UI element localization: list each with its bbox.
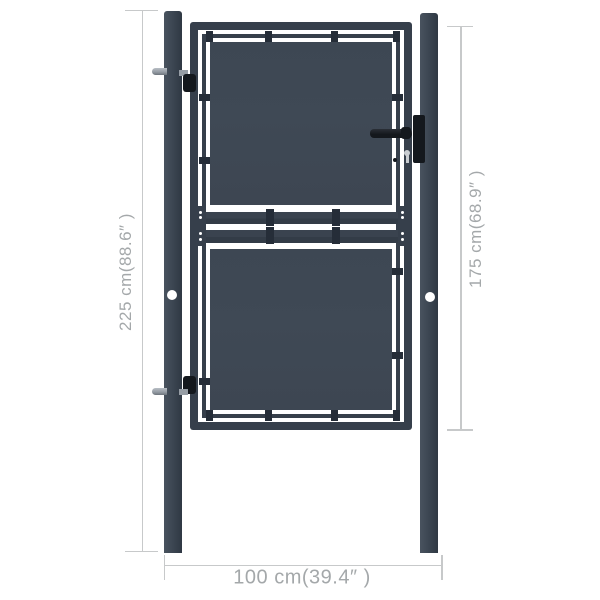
bolt-dot [199,211,202,214]
hinge-arm [179,389,188,395]
rail-clip [199,94,210,101]
dimension-tick [125,10,158,12]
rail-clip [206,410,213,421]
gate-mid-rail-upper [198,212,404,224]
rail-clip [331,31,338,42]
rail-clip [199,378,210,385]
dimension-tick [441,555,443,580]
latch-plate [413,115,425,163]
dimension-tick [447,429,473,431]
bolt-dot [401,232,404,235]
product-image: 225 cm(88.6″ ) 175 cm(68.9″ ) 100 cm(39.… [0,0,600,600]
handle-hub [401,127,411,139]
rail-clip [331,410,338,421]
rail-clip [266,209,274,226]
rail-clip [199,157,210,164]
rail-clip [265,410,272,421]
bolt-dot [199,232,202,235]
rail-clip [393,31,400,42]
screw-dot [393,158,397,162]
rail-clip [332,209,340,226]
gate-panel-lower [210,249,392,410]
dimension-label-gate-height: 175 cm(68.9″ ) [466,170,486,288]
rail-clip [393,410,400,421]
left-post [164,11,182,553]
dimension-tick [447,26,473,28]
dimension-line-vertical [142,10,144,551]
rail-clip [392,352,403,359]
gate-mid-rail-lower [198,230,404,243]
hinge-bracket [183,74,196,92]
bolt-dot [199,238,202,241]
bolt-dot [401,211,404,214]
dimension-tick [164,555,166,580]
rail-clip [392,94,403,101]
dimension-line-vertical [460,26,462,430]
dimension-label-width: 100 cm(39.4″ ) [233,567,370,590]
dimension-tick [125,551,158,553]
right-post-hole [425,292,435,302]
keyhole-slot [406,155,409,163]
rail-clip [332,227,340,244]
rail-clip [392,268,403,275]
left-post-hole [167,290,177,300]
gate-panel-upper [210,42,392,205]
right-post [420,13,438,553]
hinge-bolt-icon [152,68,167,75]
rail-clip [266,227,274,244]
rail-clip [206,31,213,42]
hinge-bolt-icon [152,388,167,395]
bolt-dot [199,216,202,219]
bolt-dot [401,216,404,219]
gate-leaf [190,22,412,430]
dimension-label-total-height: 225 cm(88.6″ ) [116,213,136,331]
rail-clip [265,31,272,42]
bolt-dot [401,238,404,241]
